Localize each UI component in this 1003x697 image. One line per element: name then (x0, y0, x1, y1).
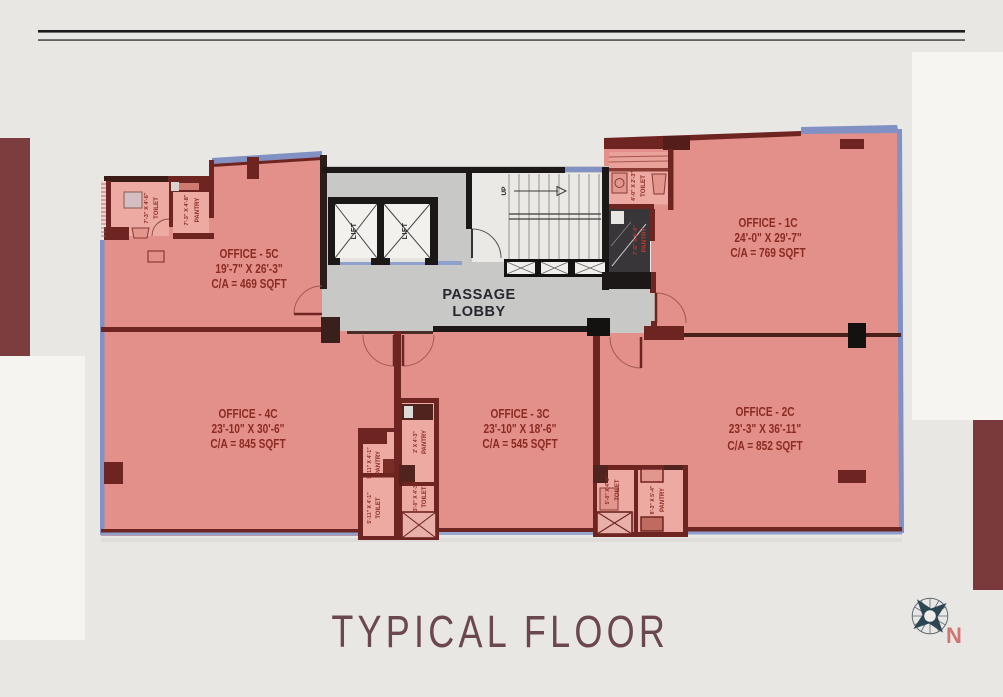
svg-text:OFFICE - 3C: OFFICE - 3C (490, 407, 550, 421)
svg-text:PASSAGE: PASSAGE (442, 287, 515, 303)
svg-text:2' X 4'-3": 2' X 4'-3" (413, 431, 419, 453)
svg-text:5'-11" X 4'-1": 5'-11" X 4'-1" (367, 447, 373, 479)
svg-text:N: N (946, 623, 962, 648)
svg-text:4'-0" X 2'-3": 4'-0" X 2'-3" (631, 171, 637, 201)
svg-text:PANTRY: PANTRY (376, 451, 382, 475)
svg-text:3'-0" X 4'-3": 3'-0" X 4'-3" (413, 482, 419, 511)
svg-text:7'-3" X 4'-8": 7'-3" X 4'-8" (184, 194, 190, 225)
svg-text:19'-7" X 26'-3": 19'-7" X 26'-3" (215, 262, 282, 276)
svg-text:LIFT: LIFT (402, 222, 409, 239)
svg-text:OFFICE - 1C: OFFICE - 1C (738, 216, 798, 230)
svg-text:TOILET: TOILET (640, 175, 647, 197)
svg-text:PANTRY: PANTRY (422, 430, 428, 454)
svg-text:TOILET: TOILET (153, 197, 160, 219)
svg-text:C/A = 852 SQFT: C/A = 852 SQFT (727, 439, 802, 453)
svg-text:PANTRY: PANTRY (641, 227, 648, 253)
svg-text:TYPICAL FLOOR: TYPICAL FLOOR (331, 606, 669, 657)
svg-text:LOBBY: LOBBY (452, 304, 505, 320)
svg-text:7'-6" X 5'-0": 7'-6" X 5'-0" (633, 225, 639, 255)
svg-text:23'-3" X 36'-11": 23'-3" X 36'-11" (729, 422, 801, 436)
svg-text:OFFICE - 5C: OFFICE - 5C (219, 247, 279, 261)
svg-text:7'-3" X 4'-6": 7'-3" X 4'-6" (144, 192, 150, 223)
svg-text:C/A = 769 SQFT: C/A = 769 SQFT (730, 246, 805, 260)
svg-text:5'-0" X 4'-9": 5'-0" X 4'-9" (605, 475, 611, 504)
svg-text:UP: UP (501, 186, 508, 196)
svg-text:OFFICE - 2C: OFFICE - 2C (735, 405, 795, 419)
svg-text:C/A = 545 SQFT: C/A = 545 SQFT (482, 437, 557, 451)
svg-text:23'-10" X 18'-6": 23'-10" X 18'-6" (484, 422, 557, 436)
svg-text:TOILET: TOILET (422, 486, 428, 508)
svg-text:8'-3" X 5'-4": 8'-3" X 5'-4" (650, 485, 656, 514)
svg-text:PANTRY: PANTRY (660, 488, 666, 512)
svg-text:23'-10" X 30'-6": 23'-10" X 30'-6" (212, 422, 285, 436)
svg-text:C/A = 845 SQFT: C/A = 845 SQFT (210, 437, 285, 451)
svg-text:OFFICE - 4C: OFFICE - 4C (218, 407, 278, 421)
svg-text:PANTRY: PANTRY (194, 197, 201, 223)
svg-text:C/A = 469 SQFT: C/A = 469 SQFT (211, 277, 286, 291)
svg-text:LIFT: LIFT (351, 222, 358, 239)
svg-text:5'-11" X 4'-1": 5'-11" X 4'-1" (367, 492, 373, 524)
svg-text:24'-0" X 29'-7": 24'-0" X 29'-7" (734, 231, 801, 245)
svg-text:TOILET: TOILET (376, 497, 382, 519)
svg-text:TOILET: TOILET (615, 479, 621, 501)
